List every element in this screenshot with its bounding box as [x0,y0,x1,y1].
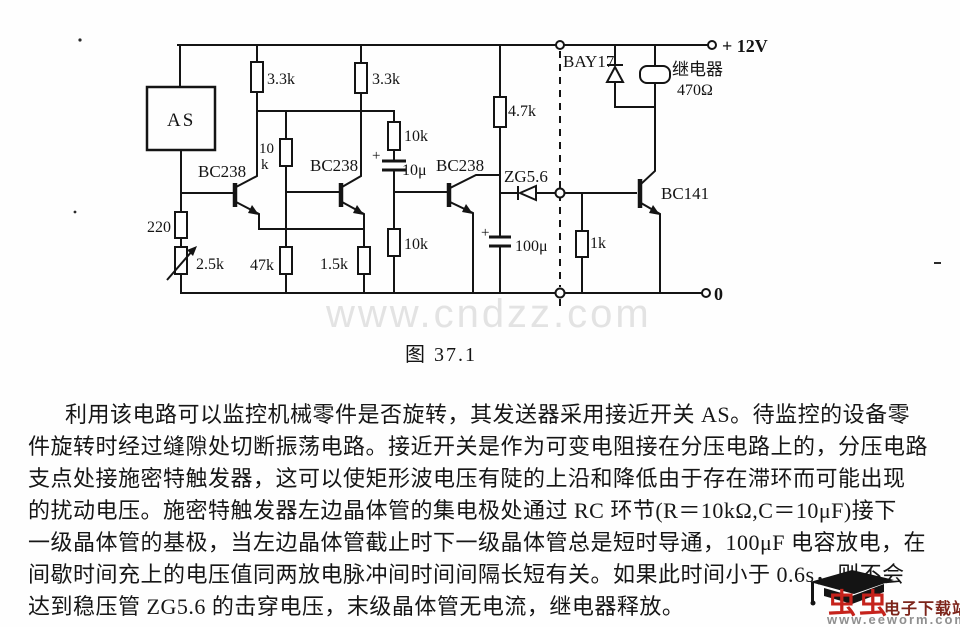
figure-caption: 图 37.1 [405,338,477,367]
relay-coil: 继电器 470Ω [640,60,723,99]
resistor-r11: 1k [576,231,606,257]
resistor-r6-label: 220 [147,219,171,236]
transistor-q3-label: BC238 [436,156,484,175]
resistor-r11-label: 1k [590,235,606,252]
rheostat-r7-label: 2.5k [196,256,224,273]
zener-zg5-6: ZG5.6 [504,167,548,200]
transistor-q3: BC238 [436,156,484,214]
transistor-q2: BC238 [310,156,364,215]
relay-value-label: 470Ω [677,82,713,99]
capacitor-c1-label: 10μ [402,162,427,179]
resistor-r4-label: 10k [404,128,428,145]
paragraph-line: 利用该电路可以监控机械零件是否旋转，其发送器采用接近开关 AS。待监控的设备零 [28,399,933,431]
circuit-nodes [556,41,717,298]
capacitor-c1: + 10μ [372,148,427,179]
logo-site-url: www.eeworm.com [827,612,960,627]
capacitor-c2-polarity: + [481,225,489,241]
transistor-q1: BC238 [198,162,259,215]
resistor-r6: 220 [147,212,187,238]
resistor-r2-label: 3.3k [372,71,400,88]
diode-bay17: BAY17 [563,52,623,82]
paragraph-line: 间歇时间充上的电压值同两放电脉冲间时间间隔长短有关。如果此时间小于 0.6s，则… [28,559,933,591]
resistor-r1: 3.3k [251,62,295,92]
transistor-q1-label: BC238 [198,162,246,181]
zener-zg5-6-label: ZG5.6 [504,167,548,186]
capacitor-c2: + 100μ [481,225,548,255]
resistor-r4: 10k [388,122,428,150]
diode-bay17-label: BAY17 [563,52,615,71]
paragraph-line: 一级晶体管的基极，当左边晶体管截止时下一级晶体管总是短时导通，100μF 电容放… [28,527,933,559]
transistor-q4: BC141 [640,179,709,215]
body-paragraph: 利用该电路可以监控机械零件是否旋转，其发送器采用接近开关 AS。待监控的设备零 … [28,399,933,623]
paragraph-line: 的扰动电压。施密特触发器左边晶体管的集电极处通过 RC 环节(R＝10kΩ,C＝… [28,495,933,527]
resistor-r1-label: 3.3k [267,71,295,88]
resistor-r8-label: 47k [250,257,274,274]
as-label: AS [167,110,195,131]
capacitor-c1-polarity: + [372,148,380,164]
proximity-switch-as: AS [147,87,215,150]
relay-name-label: 继电器 [672,60,723,79]
resistor-r8: 47k [250,247,292,274]
resistor-r5: 4.7k [494,97,536,127]
resistor-r9: 1.5k [320,247,370,274]
resistor-r3-label-line2: k [261,157,269,173]
paragraph-line: 支点处接施密特触发器，这可以使矩形波电压有陡的上沿和降低由于存在滞环而可能出现 [28,463,933,495]
resistor-r3-label-line1: 10 [259,141,274,157]
resistor-r5-label: 4.7k [508,103,536,120]
capacitor-c2-label: 100μ [515,238,548,255]
transistor-q4-label: BC141 [661,184,709,203]
paragraph-line: 达到稳压管 ZG5.6 的击穿电压，末级晶体管无电流，继电器释放。 [28,591,933,623]
site-logo: 虫虫 电子下载站 www.eeworm.com [800,566,960,627]
resistor-r10-label: 10k [404,236,428,253]
transistor-q2-label: BC238 [310,156,358,175]
paragraph-line: 件旋转时经过缝隙处切断振荡电路。接近开关是作为可变电阻接在分压电路上的，分压电路 [28,431,933,463]
resistor-r9-label: 1.5k [320,256,348,273]
rheostat-r7: 2.5k [167,246,224,280]
ground-terminal-label: 0 [714,284,723,304]
circuit-schematic: AS 3.3k 3.3k 10 k 10k 4.7k 220 2.5k 47k … [0,0,960,330]
power-terminal-label: + 12V [722,36,768,56]
resistor-r2: 3.3k [355,63,400,93]
resistor-r10: 10k [388,229,428,256]
resistor-r3: 10 k [259,139,292,173]
